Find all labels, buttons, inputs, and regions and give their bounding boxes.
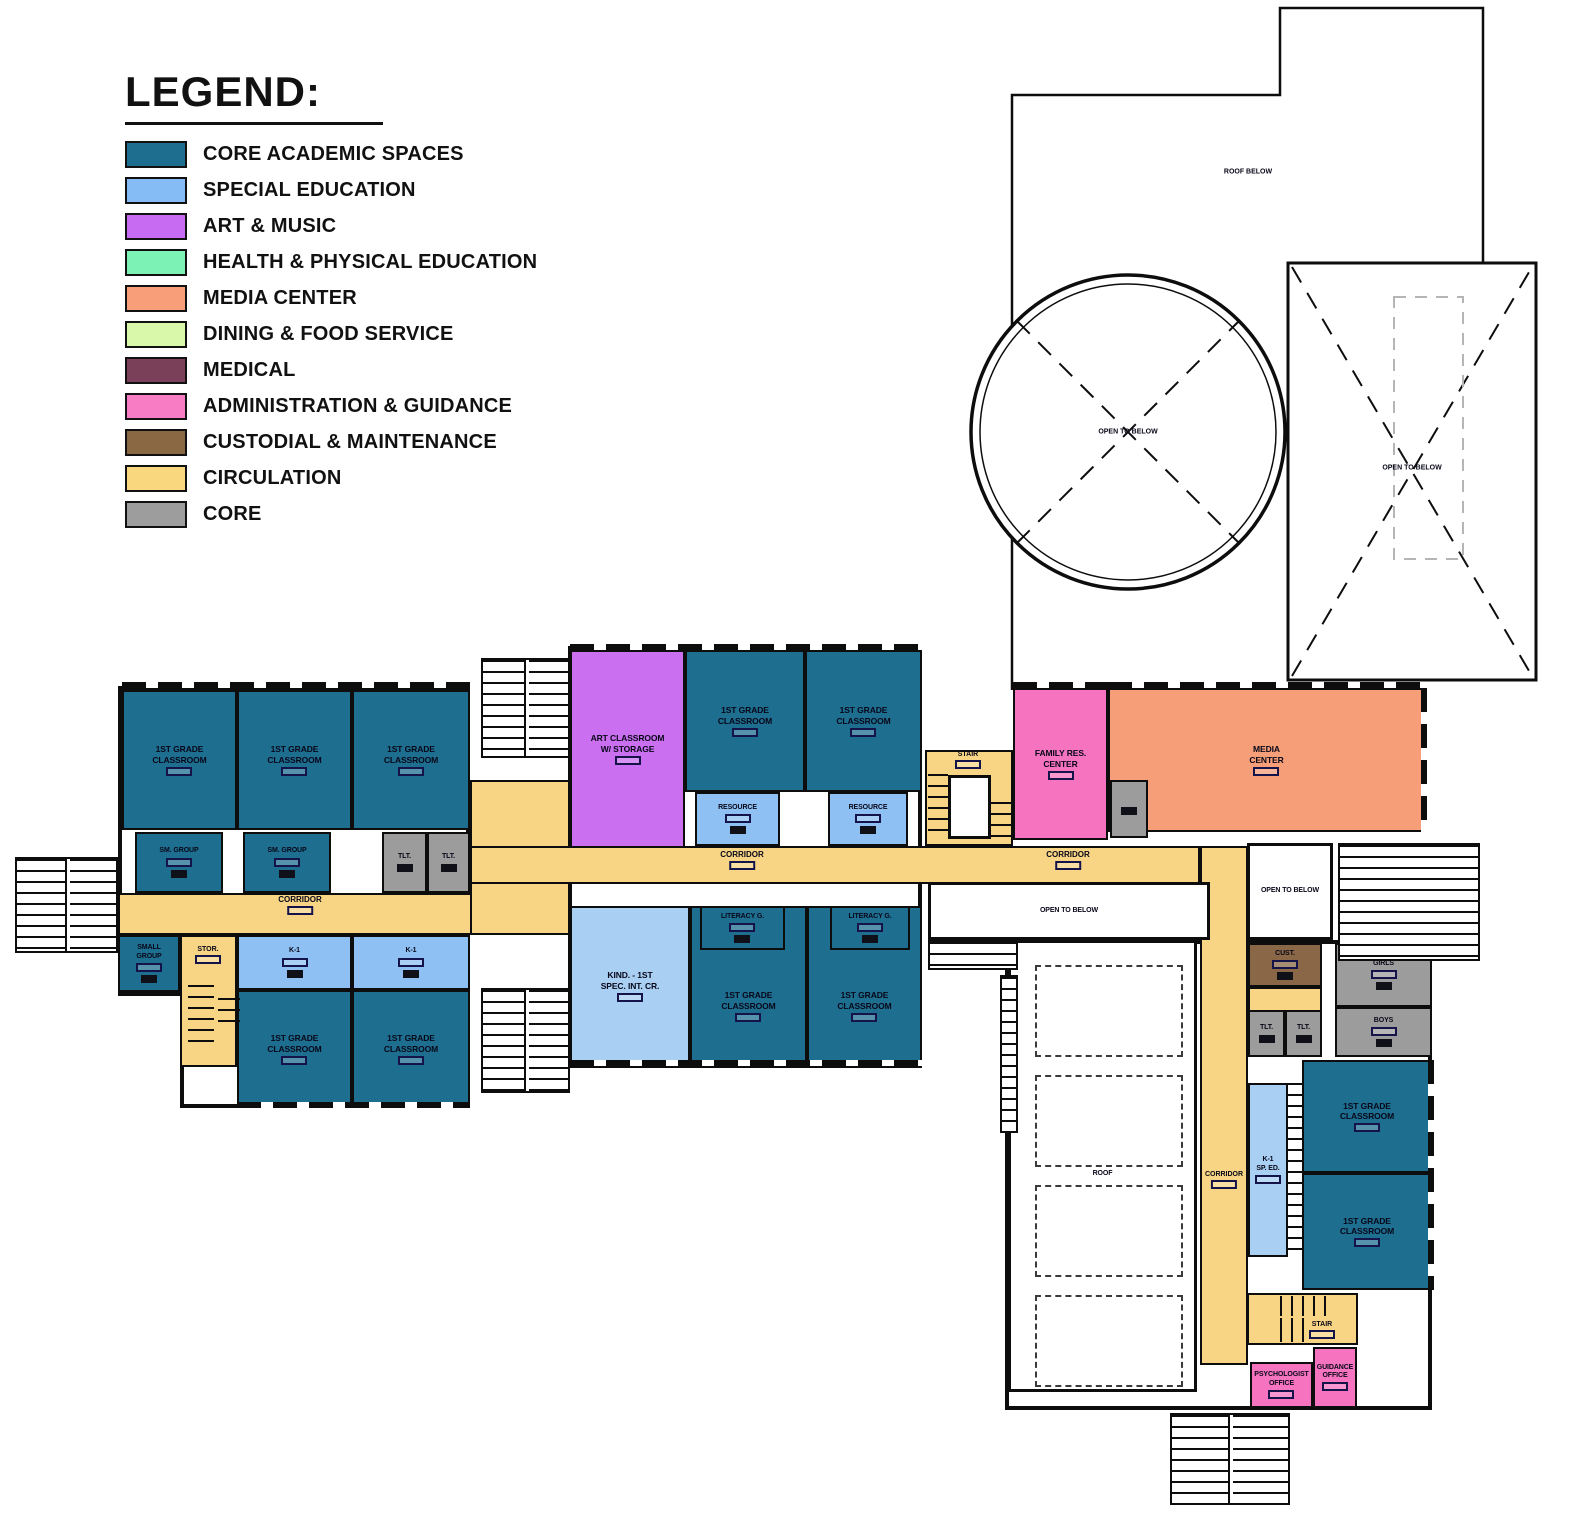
stairs: [1280, 1296, 1334, 1316]
plan-label-text: CORRIDOR: [278, 895, 322, 904]
legend-label: MEDIA CENTER: [203, 287, 357, 310]
room-number-tag: [166, 767, 192, 776]
stairs: [481, 658, 570, 758]
plan-label-open-to-below: OPEN TO BELOW: [1382, 465, 1441, 472]
room-number-tag: [1354, 1123, 1380, 1132]
room-number-tag: [274, 858, 300, 867]
legend-swatch: [125, 285, 187, 312]
room-1st-grade-classroom: 1ST GRADE CLASSROOM: [685, 650, 805, 792]
room-1st-grade-classroom: 1ST GRADE CLASSROOM: [237, 990, 352, 1108]
furniture-mark: [403, 970, 419, 978]
legend-label: DINING & FOOD SERVICE: [203, 323, 454, 346]
room-label: TLT.: [1259, 1024, 1275, 1043]
legend-swatch: [125, 321, 187, 348]
window-wall: [1428, 1060, 1434, 1290]
plan-label-open-to-below: OPEN TO BELOW: [1098, 429, 1157, 436]
plan-label-corridor: CORRIDOR: [1046, 850, 1090, 870]
room-number-tag: [1272, 960, 1298, 969]
room-number-tag: [1371, 1027, 1397, 1036]
room-number-tag: [1253, 767, 1279, 776]
stair-rail: [65, 859, 70, 951]
legend-item: DINING & FOOD SERVICE: [125, 321, 537, 348]
legend-label: CUSTODIAL & MAINTENANCE: [203, 431, 497, 454]
furniture-mark: [862, 935, 878, 943]
room-open-to-below: OPEN TO BELOW: [928, 882, 1210, 940]
room-1st-grade-classroom: 1ST GRADE CLASSROOM: [122, 690, 237, 830]
plan-label-stair: STAIR: [1309, 1321, 1335, 1339]
stairs: [991, 802, 1011, 840]
room-number-tag: [1211, 1180, 1237, 1189]
room-family-res-center: FAMILY RES. CENTER: [1013, 688, 1108, 840]
floor-plan-page: LEGEND: CORE ACADEMIC SPACESSPECIAL EDUC…: [0, 0, 1582, 1520]
room-boys: BOYS: [1335, 1007, 1432, 1057]
plan-label-corridor: CORRIDOR: [1205, 1171, 1243, 1189]
roof-panel-outline: [1035, 1185, 1183, 1277]
room-number-tag: [1255, 1175, 1281, 1184]
plan-label-text: OPEN TO BELOW: [1098, 429, 1157, 436]
furniture-mark: [287, 970, 303, 978]
legend-swatch: [125, 465, 187, 492]
stairs: [928, 940, 1018, 970]
room-label: K-1: [398, 947, 424, 977]
legend-swatch: [125, 213, 187, 240]
legend-item: HEALTH & PHYSICAL EDUCATION: [125, 249, 537, 276]
legend-label: ART & MUSIC: [203, 215, 336, 238]
legend-label: CORE ACADEMIC SPACES: [203, 143, 464, 166]
room-number-tag: [729, 861, 755, 870]
furniture-mark: [734, 935, 750, 943]
window-wall: [237, 1102, 470, 1108]
legend-label: ADMINISTRATION & GUIDANCE: [203, 395, 512, 418]
legend-swatch: [125, 501, 187, 528]
stairs: [1288, 1083, 1302, 1257]
legend-item: CUSTODIAL & MAINTENANCE: [125, 429, 537, 456]
furniture-mark: [1259, 1035, 1275, 1043]
room-number-tag: [857, 923, 883, 932]
room-label: RESOURCE: [718, 804, 757, 834]
legend-swatch: [125, 177, 187, 204]
plan-label-text: CORRIDOR: [1046, 850, 1090, 859]
room-tlt: TLT.: [1248, 1010, 1285, 1057]
room-number-tag: [166, 858, 192, 867]
legend-swatch: [125, 141, 187, 168]
room-label: 1ST GRADE CLASSROOM: [1340, 1216, 1394, 1247]
room-number-tag: [955, 760, 981, 769]
furniture-mark: [141, 975, 157, 983]
room-number-tag: [281, 767, 307, 776]
stair-rail: [1228, 1415, 1233, 1503]
plan-label-corridor: CORRIDOR: [278, 895, 322, 915]
furniture-mark: [860, 826, 876, 834]
legend-swatch: [125, 249, 187, 276]
plan-label-roof-below: ROOF BELOW: [1224, 169, 1272, 176]
room-resource: RESOURCE: [828, 792, 908, 846]
room-number-tag: [1354, 1238, 1380, 1247]
room-number-tag: [282, 958, 308, 967]
furniture-mark: [171, 870, 187, 878]
room-label: SM. GROUP: [267, 847, 306, 877]
room-label: 1ST GRADE CLASSROOM: [384, 744, 438, 775]
window-wall: [122, 682, 470, 688]
stairs: [1170, 1413, 1290, 1505]
room-label: K-1: [282, 947, 308, 977]
room-room: [1110, 780, 1148, 838]
room-resource: RESOURCE: [695, 792, 780, 846]
stairs: [15, 857, 118, 953]
legend-item: ADMINISTRATION & GUIDANCE: [125, 393, 537, 420]
room-label: OPEN TO BELOW: [1261, 887, 1319, 895]
legend: LEGEND: CORE ACADEMIC SPACESSPECIAL EDUC…: [125, 68, 537, 537]
room-number-tag: [735, 1013, 761, 1022]
room-label: PSYCHOLOGIST OFFICE: [1254, 1371, 1308, 1399]
stair-rail: [524, 660, 529, 756]
room-number-tag: [1371, 970, 1397, 979]
room-number-tag: [1322, 1382, 1348, 1391]
room-number-tag: [851, 1013, 877, 1022]
circulation-area: [1248, 987, 1322, 1012]
room-label: 1ST GRADE CLASSROOM: [267, 744, 321, 775]
furniture-mark: [1376, 1039, 1392, 1047]
room-kind-1st-spec-int-cr: KIND. - 1ST SPEC. INT. CR.: [570, 906, 690, 1066]
room-sm-group: SM. GROUP: [243, 832, 331, 893]
room-label: TLT.: [397, 853, 413, 872]
room-label: RESOURCE: [849, 804, 888, 834]
room-number-tag: [1055, 861, 1081, 870]
furniture-mark: [1121, 807, 1137, 815]
room-label: OPEN TO BELOW: [1040, 907, 1098, 915]
room-number-tag: [1268, 1390, 1294, 1399]
stairs: [188, 985, 214, 1047]
room-tlt: TLT.: [427, 832, 470, 893]
circulation-area: [470, 846, 1200, 884]
room-sm-group: SM. GROUP: [135, 832, 223, 893]
legend-swatch: [125, 357, 187, 384]
legend-item: CIRCULATION: [125, 465, 537, 492]
window-wall: [1421, 688, 1427, 832]
window-wall: [570, 1060, 922, 1066]
roof-panel-outline: [1035, 1075, 1183, 1167]
room-label: 1ST GRADE CLASSROOM: [384, 1033, 438, 1064]
room-art-classroom-w-storage: ART CLASSROOM W/ STORAGE: [570, 650, 685, 848]
window-wall: [1013, 682, 1108, 688]
room-tlt: TLT.: [1285, 1010, 1322, 1057]
room-literacy-g: LITERACY G.: [830, 906, 910, 950]
room-label: 1ST GRADE CLASSROOM: [836, 705, 890, 736]
legend-label: HEALTH & PHYSICAL EDUCATION: [203, 251, 537, 274]
room-number-tag: [136, 963, 162, 972]
room-number-tag: [398, 767, 424, 776]
roof-panel-outline: [1035, 965, 1183, 1057]
room-label: ART CLASSROOM W/ STORAGE: [591, 733, 665, 764]
stairs: [481, 988, 570, 1093]
legend-item: CORE ACADEMIC SPACES: [125, 141, 537, 168]
legend-item: MEDIA CENTER: [125, 285, 537, 312]
stairs: [218, 998, 240, 1030]
legend-swatch: [125, 429, 187, 456]
room-label: KIND. - 1ST SPEC. INT. CR.: [601, 970, 660, 1001]
room-label: GUIDANCE OFFICE: [1317, 1364, 1354, 1392]
room-label: CUST.: [1272, 950, 1298, 980]
legend-title: LEGEND:: [125, 68, 383, 125]
room-1st-grade-classroom: 1ST GRADE CLASSROOM: [805, 650, 922, 792]
room-k-1: K-1: [237, 935, 352, 990]
room-label: 1ST GRADE CLASSROOM: [718, 705, 772, 736]
room-label: LITERACY G.: [848, 913, 891, 943]
room-label: 1ST GRADE CLASSROOM: [837, 990, 891, 1021]
stairs: [1338, 843, 1480, 961]
room-media-center: MEDIA CENTER: [1108, 688, 1425, 832]
legend-item: CORE: [125, 501, 537, 528]
legend-label: CIRCULATION: [203, 467, 341, 490]
room-number-tag: [850, 728, 876, 737]
furniture-mark: [1277, 972, 1293, 980]
room-label: SMALL GROUP: [136, 944, 162, 983]
room-number-tag: [1309, 1330, 1335, 1339]
legend-item: ART & MUSIC: [125, 213, 537, 240]
room-label: TLT.: [441, 853, 457, 872]
plan-label-stair: STAIR: [955, 751, 981, 769]
room-small-group: SMALL GROUP: [118, 935, 180, 992]
room-1st-grade-classroom: 1ST GRADE CLASSROOM: [352, 990, 470, 1108]
room-label: SM. GROUP: [159, 847, 198, 877]
room-number-tag: [617, 993, 643, 1002]
plan-label-text: ROOF BELOW: [1224, 169, 1272, 176]
room-number-tag: [615, 756, 641, 765]
room-psychologist-office: PSYCHOLOGIST OFFICE: [1250, 1362, 1313, 1408]
plan-label-text: CORRIDOR: [1205, 1171, 1243, 1178]
room-label: MEDIA CENTER: [1249, 744, 1283, 775]
room-label: 1ST GRADE CLASSROOM: [721, 990, 775, 1021]
room-1st-grade-classroom: 1ST GRADE CLASSROOM: [1302, 1060, 1432, 1173]
room-k-1-sp-ed: K-1 SP. ED.: [1248, 1083, 1288, 1257]
legend-label: CORE: [203, 503, 262, 526]
room-label: 1ST GRADE CLASSROOM: [152, 744, 206, 775]
plan-label-text: STOR.: [197, 946, 218, 953]
room-label: 1ST GRADE CLASSROOM: [267, 1033, 321, 1064]
room-number-tag: [729, 923, 755, 932]
furniture-mark: [441, 864, 457, 872]
room-number-tag: [398, 1056, 424, 1065]
room-number-tag: [287, 906, 313, 915]
room-k-1: K-1: [352, 935, 470, 990]
room-guidance-office: GUIDANCE OFFICE: [1313, 1347, 1357, 1408]
room-open-to-below: OPEN TO BELOW: [1247, 843, 1333, 940]
room-literacy-g: LITERACY G.: [700, 906, 785, 950]
legend-items: CORE ACADEMIC SPACESSPECIAL EDUCATIONART…: [125, 141, 537, 528]
room-number-tag: [725, 814, 751, 823]
room-tlt: TLT.: [382, 832, 427, 893]
room-room: [948, 775, 991, 839]
plan-label-text: STAIR: [958, 751, 978, 758]
room-label: GIRLS: [1371, 960, 1397, 990]
room-number-tag: [732, 728, 758, 737]
window-wall: [570, 644, 922, 650]
window-wall: [1108, 682, 1425, 688]
room-number-tag: [1048, 771, 1074, 780]
legend-label: MEDICAL: [203, 359, 296, 382]
legend-label: SPECIAL EDUCATION: [203, 179, 416, 202]
stairs: [1000, 975, 1018, 1133]
room-1st-grade-classroom: 1ST GRADE CLASSROOM: [1302, 1173, 1432, 1290]
stairs: [928, 774, 948, 840]
room-number-tag: [281, 1056, 307, 1065]
furniture-mark: [1376, 982, 1392, 990]
room-label: FAMILY RES. CENTER: [1035, 748, 1086, 779]
plan-label-corridor: CORRIDOR: [720, 850, 764, 870]
room-cust: CUST.: [1248, 943, 1322, 987]
room-label: K-1 SP. ED.: [1255, 1156, 1281, 1184]
furniture-mark: [730, 826, 746, 834]
plan-label-text: OPEN TO BELOW: [1382, 465, 1441, 472]
legend-item: SPECIAL EDUCATION: [125, 177, 537, 204]
room-label: LITERACY G.: [721, 913, 764, 943]
room-number-tag: [855, 814, 881, 823]
room-label: 1ST GRADE CLASSROOM: [1340, 1101, 1394, 1132]
room-1st-grade-classroom: 1ST GRADE CLASSROOM: [352, 690, 470, 830]
legend-item: MEDICAL: [125, 357, 537, 384]
furniture-mark: [1296, 1035, 1312, 1043]
room-label: TLT.: [1296, 1024, 1312, 1043]
room-label: BOYS: [1371, 1017, 1397, 1047]
furniture-mark: [397, 864, 413, 872]
legend-swatch: [125, 393, 187, 420]
room-number-tag: [195, 955, 221, 964]
roof-panel-outline: [1035, 1295, 1183, 1387]
plan-label-stor: STOR.: [195, 946, 221, 964]
plan-label-text: CORRIDOR: [720, 850, 764, 859]
stairs: [1280, 1318, 1312, 1342]
plan-label-text: STAIR: [1312, 1321, 1332, 1328]
room-1st-grade-classroom: 1ST GRADE CLASSROOM: [237, 690, 352, 830]
room-number-tag: [398, 958, 424, 967]
furniture-mark: [279, 870, 295, 878]
stair-rail: [524, 990, 529, 1091]
